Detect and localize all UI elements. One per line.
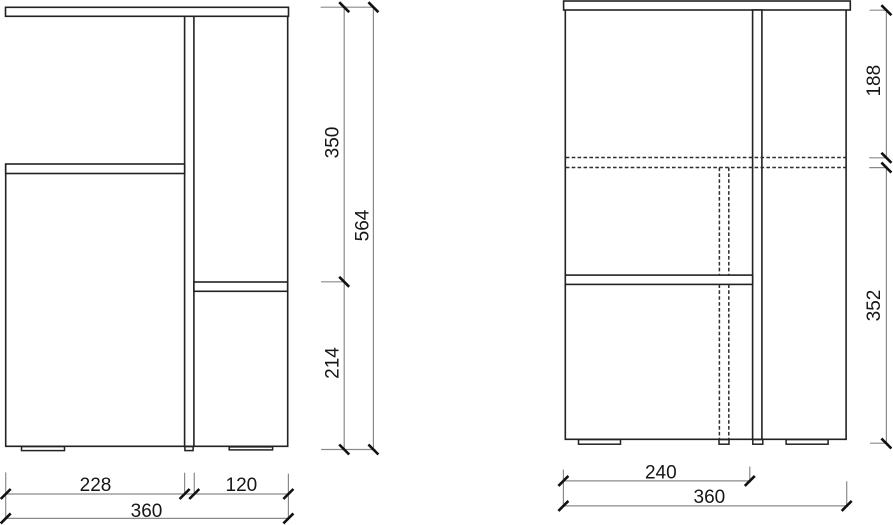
- svg-text:352: 352: [864, 290, 885, 322]
- svg-text:228: 228: [80, 475, 112, 496]
- svg-text:360: 360: [131, 501, 163, 522]
- svg-text:350: 350: [323, 127, 344, 159]
- svg-text:214: 214: [323, 347, 344, 379]
- svg-text:188: 188: [864, 65, 885, 97]
- svg-text:120: 120: [226, 475, 258, 496]
- svg-text:240: 240: [645, 462, 677, 483]
- svg-text:360: 360: [694, 487, 726, 508]
- svg-text:564: 564: [352, 209, 373, 241]
